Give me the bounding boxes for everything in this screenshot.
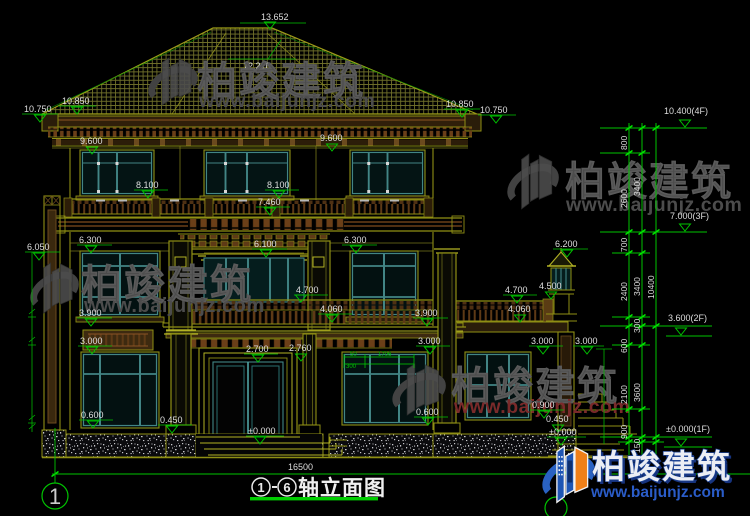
svg-text:7.000(3F): 7.000(3F) (670, 211, 709, 221)
svg-text:±0.000(1F): ±0.000(1F) (666, 424, 710, 434)
svg-text:10.750: 10.750 (480, 105, 508, 115)
svg-text:3.000: 3.000 (80, 336, 103, 346)
svg-text:3.900: 3.900 (79, 308, 102, 318)
svg-text:3400: 3400 (632, 177, 642, 196)
svg-text:4.060: 4.060 (320, 304, 343, 314)
svg-text:8.100: 8.100 (267, 180, 290, 190)
svg-text:6.200: 6.200 (555, 239, 578, 249)
svg-text:4.060: 4.060 (508, 304, 531, 314)
svg-text:1: 1 (257, 480, 264, 495)
svg-text:6.050: 6.050 (27, 242, 50, 252)
svg-text:www.baijunjz.com: www.baijunjz.com (198, 90, 375, 112)
svg-text:6.300: 6.300 (344, 235, 367, 245)
svg-text:900: 900 (619, 425, 629, 439)
svg-text:6: 6 (283, 480, 290, 495)
svg-text:4.700: 4.700 (296, 285, 319, 295)
svg-text:800: 800 (619, 136, 629, 150)
svg-text:www.baijunjz.com: www.baijunjz.com (83, 295, 265, 317)
svg-text:www.baijunjz.com: www.baijunjz.com (590, 484, 725, 501)
svg-text:3.600(2F): 3.600(2F) (668, 313, 707, 323)
svg-text:700: 700 (619, 238, 629, 252)
svg-text:www.baijunjz.com: www.baijunjz.com (565, 194, 742, 216)
svg-text:0.600: 0.600 (416, 407, 439, 417)
svg-text:16500: 16500 (288, 462, 313, 472)
svg-text:4.700: 4.700 (505, 285, 528, 295)
svg-text:轴立面图: 轴立面图 (298, 476, 386, 500)
svg-text:0.900: 0.900 (532, 400, 555, 410)
svg-text:1706: 1706 (378, 352, 392, 358)
svg-text:50: 50 (350, 352, 357, 358)
svg-text:9.600: 9.600 (320, 133, 343, 143)
svg-text:柏竣建筑: 柏竣建筑 (592, 448, 732, 485)
svg-text:3400: 3400 (632, 277, 642, 296)
svg-text:2100: 2100 (619, 385, 629, 404)
svg-text:±0.000: ±0.000 (248, 426, 275, 436)
svg-text:10.850: 10.850 (62, 96, 90, 106)
svg-text:6.300: 6.300 (79, 235, 102, 245)
svg-text:±0.000: ±0.000 (549, 427, 576, 437)
svg-text:0.600: 0.600 (81, 410, 104, 420)
svg-text:2.760: 2.760 (289, 343, 312, 353)
svg-text:4.500: 4.500 (539, 281, 562, 291)
svg-text:3600: 3600 (632, 383, 642, 402)
svg-text:13.652: 13.652 (261, 12, 289, 22)
svg-text:9.600: 9.600 (80, 136, 103, 146)
svg-text:300: 300 (346, 364, 357, 370)
svg-text:2400: 2400 (619, 282, 629, 301)
svg-text:2.700: 2.700 (246, 344, 269, 354)
svg-text:10.850: 10.850 (446, 99, 474, 109)
svg-text:600: 600 (619, 339, 629, 353)
svg-text:0.450: 0.450 (546, 414, 569, 424)
svg-text:3.000: 3.000 (531, 336, 554, 346)
svg-text:3.000: 3.000 (575, 336, 598, 346)
svg-text:10.750: 10.750 (24, 104, 52, 114)
svg-text:10.400(4F): 10.400(4F) (664, 106, 708, 116)
svg-text:3.000: 3.000 (418, 336, 441, 346)
svg-text:10400: 10400 (646, 275, 656, 299)
svg-text:2600: 2600 (619, 189, 629, 208)
svg-text:7.460: 7.460 (258, 197, 281, 207)
svg-text:0.450: 0.450 (160, 415, 183, 425)
svg-text:6.100: 6.100 (254, 239, 277, 249)
svg-text:3.900: 3.900 (415, 308, 438, 318)
svg-text:1: 1 (49, 484, 61, 509)
svg-text:300: 300 (632, 319, 642, 333)
svg-text:8.100: 8.100 (136, 180, 159, 190)
